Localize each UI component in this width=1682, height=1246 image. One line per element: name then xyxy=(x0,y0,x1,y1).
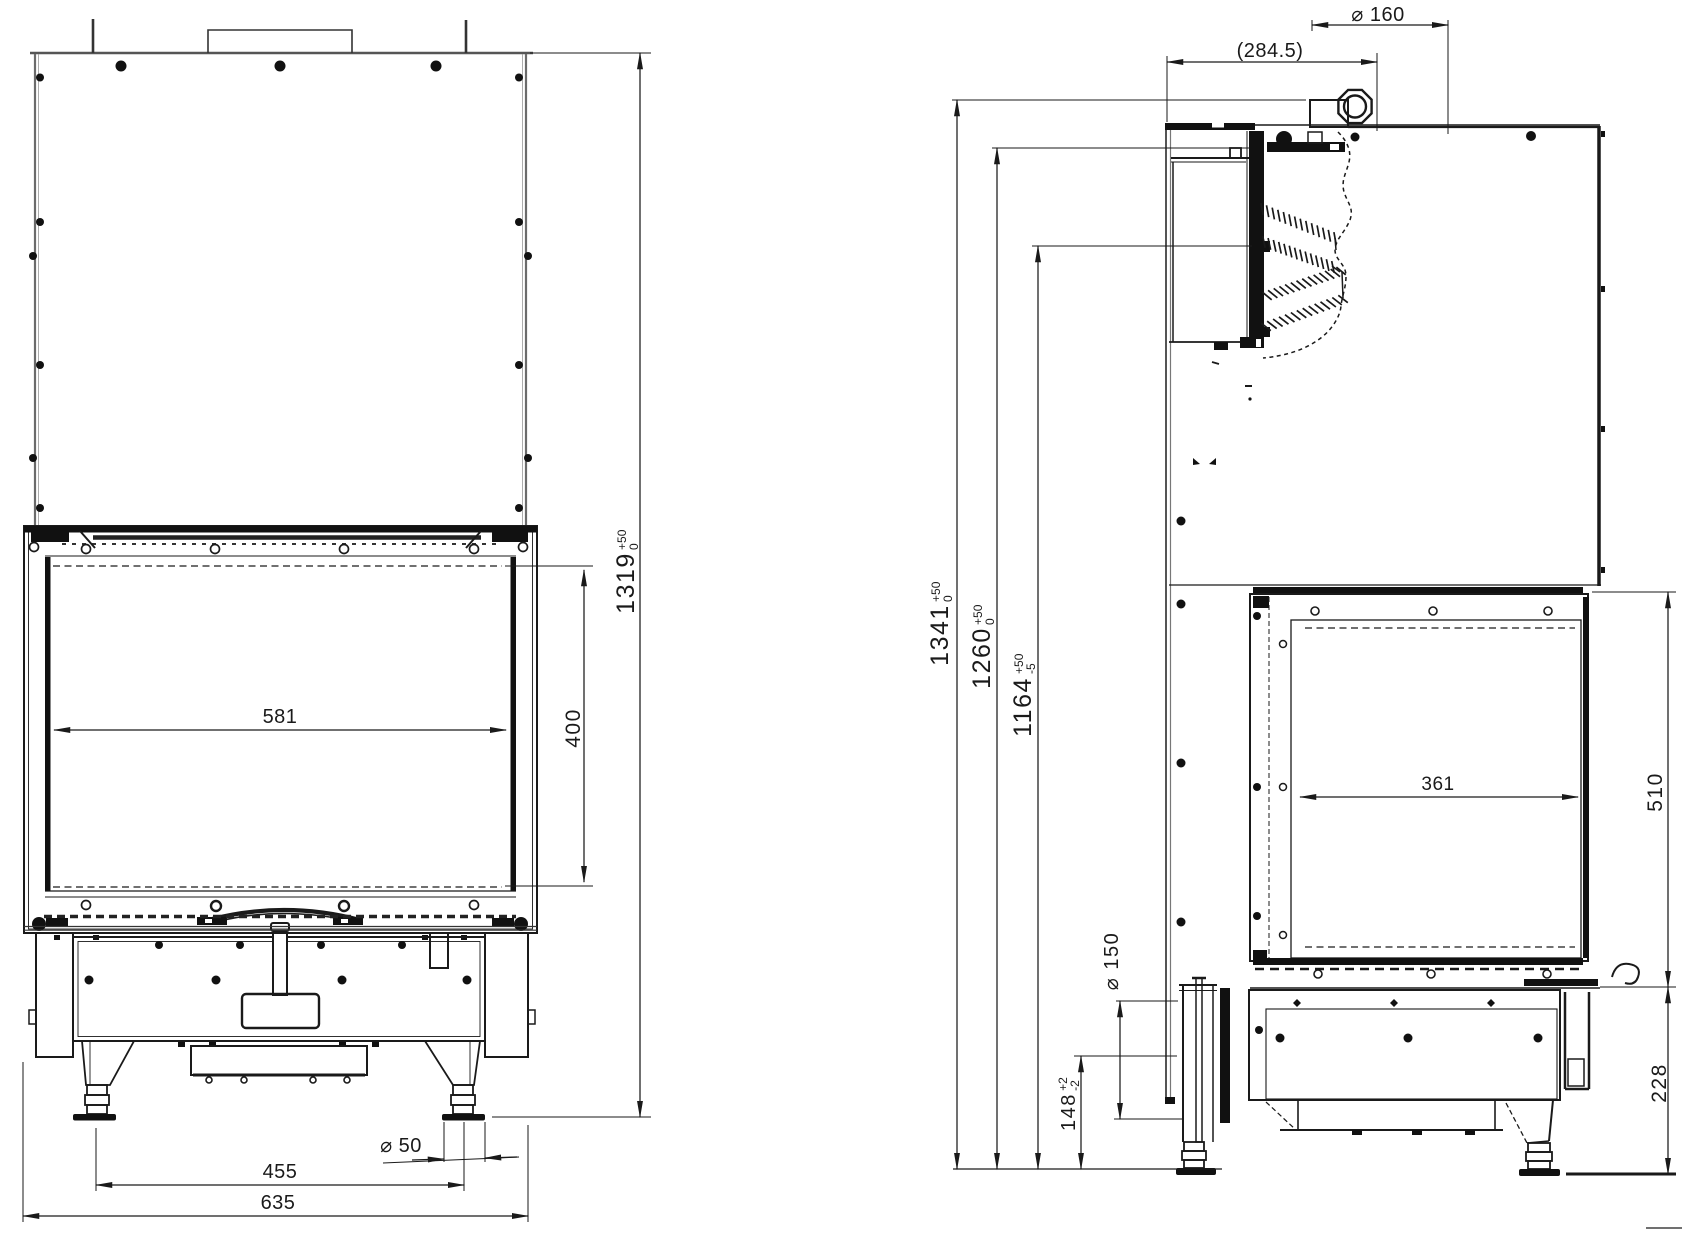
svg-text:148: 148 xyxy=(1058,1093,1080,1131)
svg-text:(284.5): (284.5) xyxy=(1237,40,1304,62)
svg-text:1341: 1341 xyxy=(926,604,954,666)
svg-text:510: 510 xyxy=(1644,772,1667,812)
svg-text:361: 361 xyxy=(1421,774,1454,795)
svg-text:400: 400 xyxy=(562,708,585,748)
svg-text:⌀ 150: ⌀ 150 xyxy=(1101,932,1123,990)
svg-text:0: 0 xyxy=(983,618,997,625)
svg-text:⌀ 50: ⌀ 50 xyxy=(380,1135,422,1157)
svg-text:1164: 1164 xyxy=(1009,677,1037,737)
svg-text:⌀ 160: ⌀ 160 xyxy=(1351,4,1404,26)
svg-text:228: 228 xyxy=(1648,1063,1671,1103)
svg-text:581: 581 xyxy=(263,706,298,728)
svg-text:-5: -5 xyxy=(1024,663,1038,674)
svg-text:455: 455 xyxy=(263,1161,298,1183)
svg-text:0: 0 xyxy=(627,543,641,550)
svg-text:1319: 1319 xyxy=(612,552,640,614)
svg-text:1260: 1260 xyxy=(968,627,996,689)
svg-text:-2: -2 xyxy=(1068,1080,1082,1091)
svg-text:0: 0 xyxy=(941,595,955,602)
svg-text:635: 635 xyxy=(261,1192,296,1214)
